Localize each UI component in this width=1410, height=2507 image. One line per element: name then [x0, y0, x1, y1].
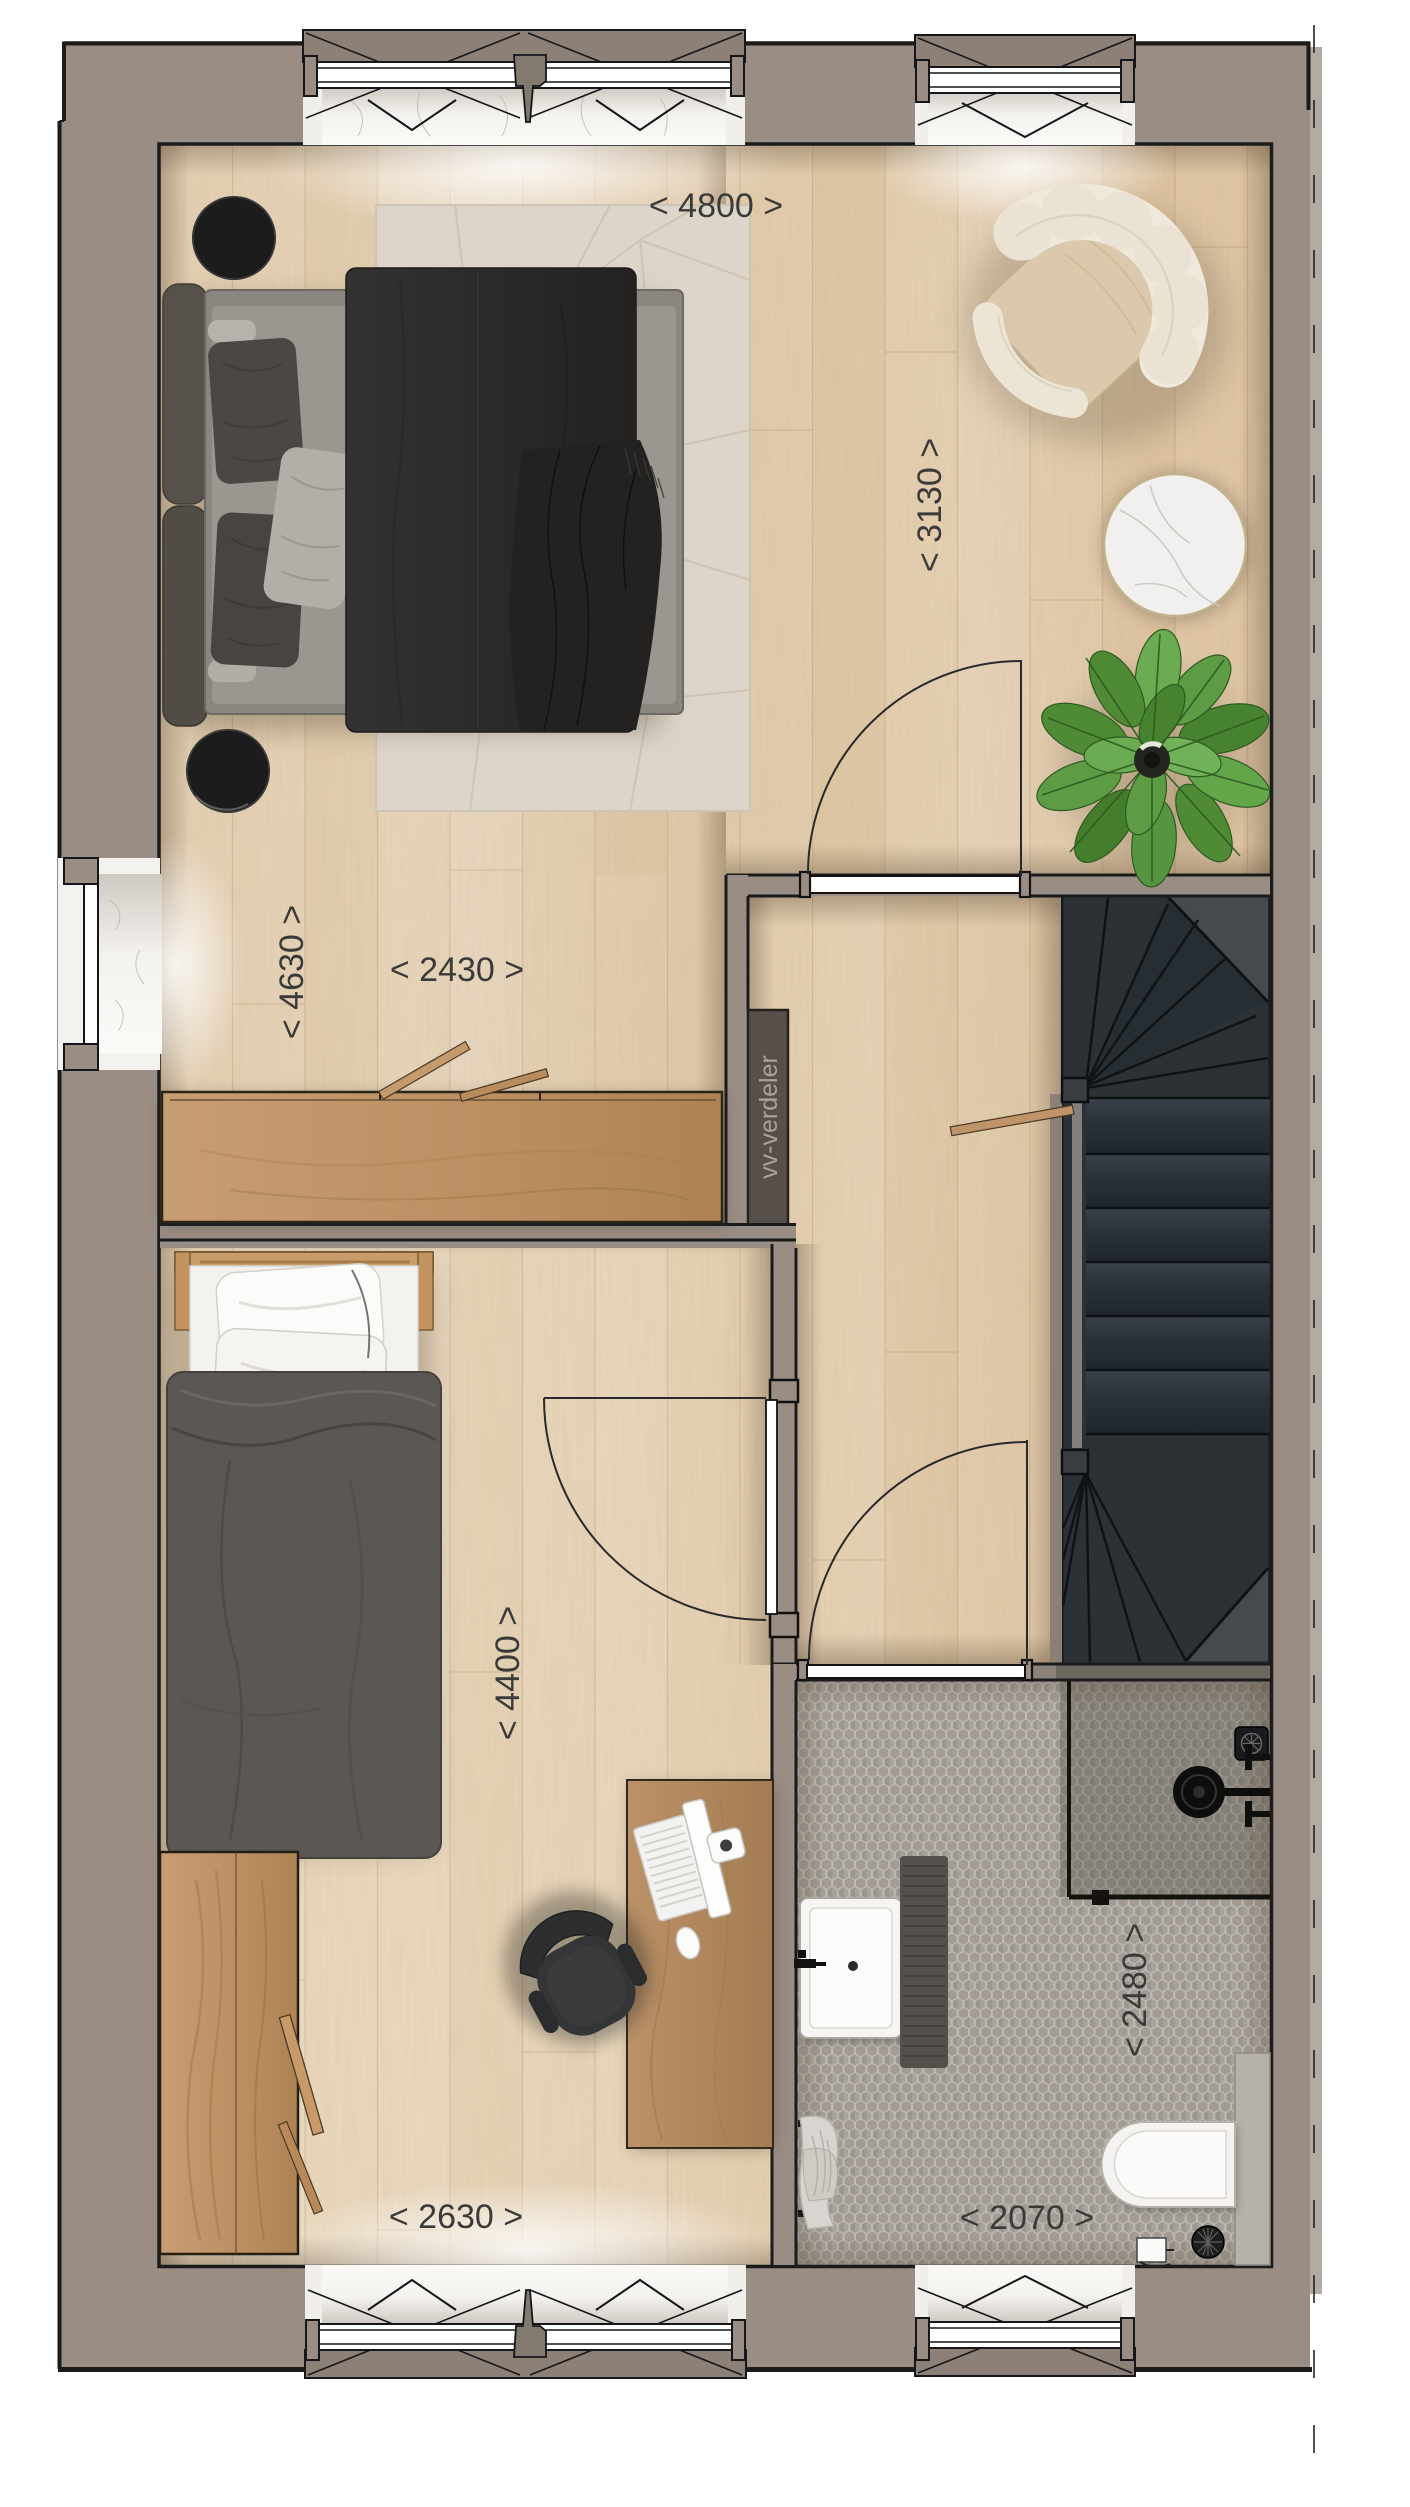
svg-text:< 4800 >: < 4800 >	[649, 187, 783, 225]
svg-text:< 4400 >: < 4400 >	[489, 1606, 527, 1740]
svg-text:< 2480 >: < 2480 >	[1116, 1923, 1154, 2057]
svg-text:vv-verdeler: vv-verdeler	[755, 1055, 783, 1179]
svg-text:< 2070 >: < 2070 >	[960, 2199, 1094, 2237]
svg-text:< 2630 >: < 2630 >	[389, 2198, 523, 2236]
svg-text:< 4630 >: < 4630 >	[273, 905, 311, 1039]
svg-text:< 3130 >: < 3130 >	[911, 438, 949, 572]
svg-text:< 2430 >: < 2430 >	[390, 951, 524, 989]
